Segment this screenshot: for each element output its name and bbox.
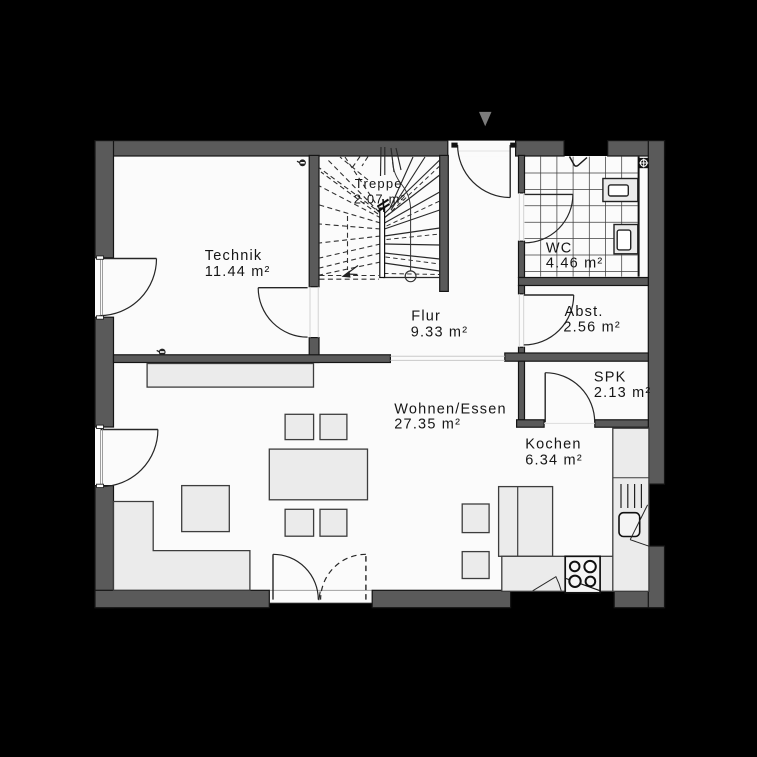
svg-text:4.46 m²: 4.46 m² (546, 256, 604, 272)
svg-text:2.56 m²: 2.56 m² (563, 320, 621, 336)
svg-text:SPK: SPK (594, 370, 627, 386)
svg-text:Flur: Flur (411, 309, 441, 325)
svg-text:Treppe: Treppe (355, 176, 403, 191)
svg-text:Kochen: Kochen (525, 437, 581, 453)
svg-text:11.44 m²: 11.44 m² (205, 264, 271, 280)
svg-text:Wohnen/Essen: Wohnen/Essen (394, 402, 506, 418)
svg-text:2.13 m²: 2.13 m² (594, 385, 652, 401)
svg-text:9.33 m²: 9.33 m² (411, 324, 469, 340)
svg-text:2.07 m²: 2.07 m² (354, 192, 406, 207)
svg-text:27.35 m²: 27.35 m² (394, 417, 461, 433)
svg-text:6.34 m²: 6.34 m² (525, 452, 583, 468)
svg-text:Technik: Technik (205, 248, 263, 264)
svg-text:WC: WC (546, 240, 573, 256)
svg-text:Abst.: Abst. (565, 304, 604, 320)
